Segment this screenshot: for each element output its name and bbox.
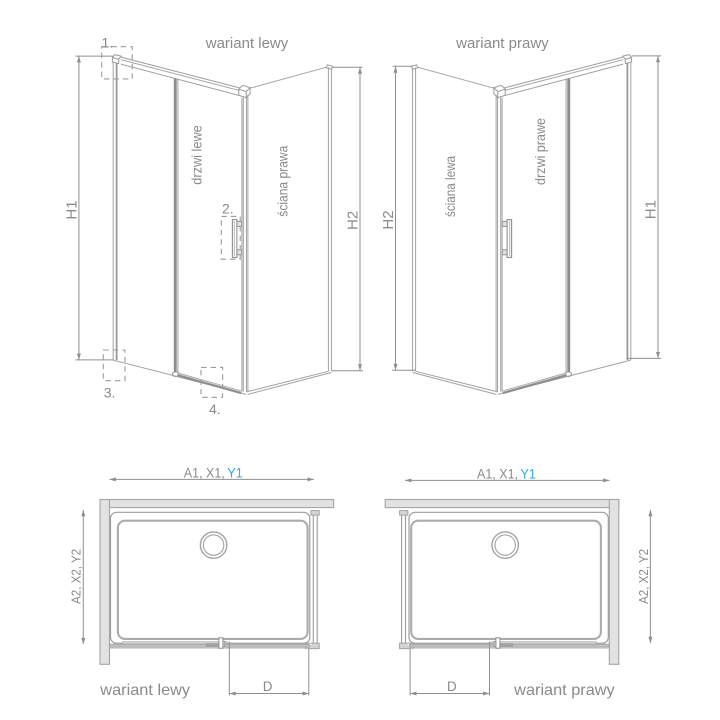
svg-text:1.: 1.	[102, 35, 114, 51]
svg-text:A2, X2, Y2: A2, X2, Y2	[636, 549, 651, 604]
svg-text:wariant prawy: wariant prawy	[513, 682, 615, 699]
svg-text:drzwi prawe: drzwi prawe	[533, 118, 548, 185]
svg-text:Y1: Y1	[520, 466, 536, 482]
svg-text:3.: 3.	[104, 384, 116, 400]
svg-text:drzwi lewe: drzwi lewe	[190, 125, 205, 185]
svg-text:ściana prawa: ściana prawa	[275, 145, 290, 216]
svg-text:wariant lewy: wariant lewy	[99, 682, 190, 699]
svg-text:Y1: Y1	[227, 465, 243, 481]
svg-text:A2, X2, Y2: A2, X2, Y2	[69, 549, 84, 604]
svg-text:D: D	[263, 679, 273, 694]
svg-text:H2: H2	[380, 210, 397, 229]
svg-text:ściana lewa: ściana lewa	[443, 156, 458, 217]
svg-text:wariant prawy: wariant prawy	[455, 35, 549, 52]
svg-text:A1, X1,: A1, X1,	[184, 465, 225, 481]
svg-text:4.: 4.	[209, 401, 221, 417]
svg-text:A1, X1,: A1, X1,	[477, 466, 518, 482]
svg-text:wariant lewy: wariant lewy	[205, 35, 289, 52]
svg-text:H1: H1	[64, 200, 81, 219]
svg-text:D: D	[447, 679, 457, 694]
svg-text:H2: H2	[344, 211, 361, 230]
svg-text:2.: 2.	[222, 200, 234, 216]
svg-text:H1: H1	[642, 200, 659, 219]
